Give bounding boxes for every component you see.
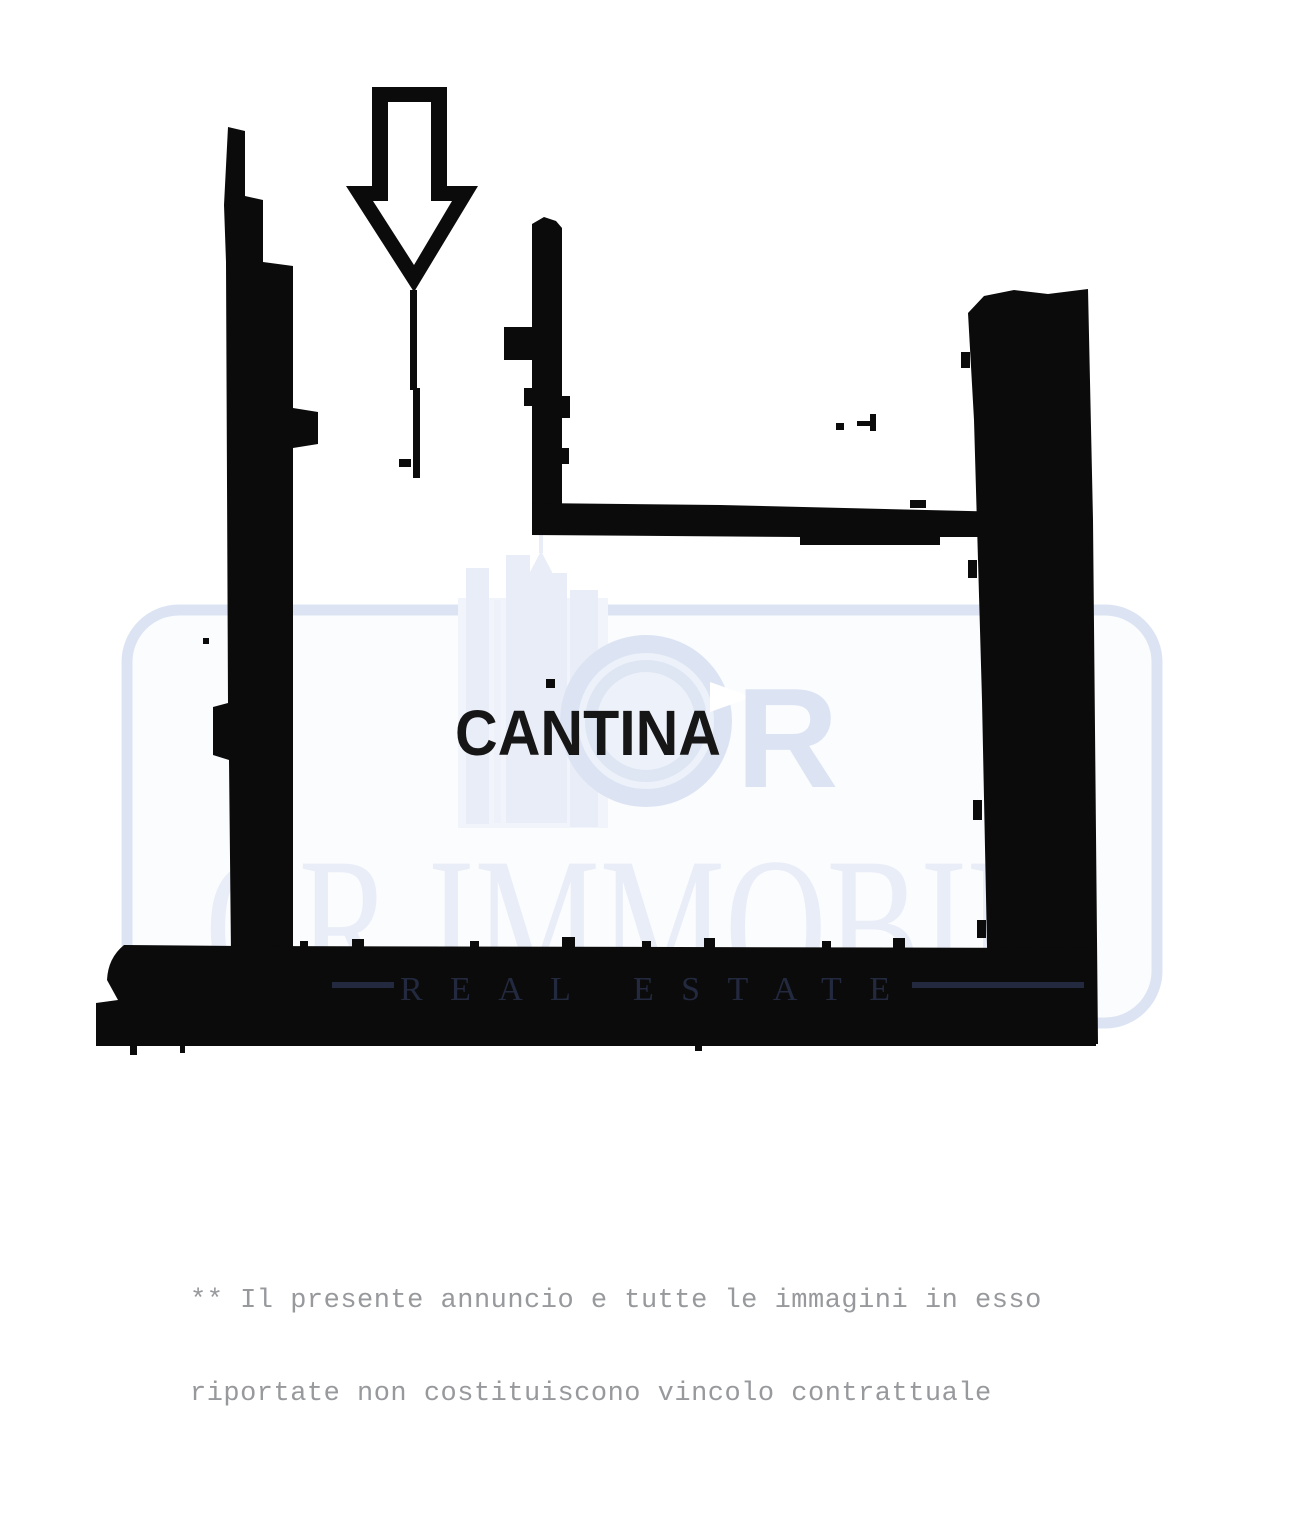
scanned-floorplan-page: R CR IMMOBILI xyxy=(0,0,1293,1536)
tagline-rule-right xyxy=(912,982,1084,988)
wall-partition xyxy=(532,503,1010,545)
room-label: CANTINA xyxy=(455,697,721,769)
disclaimer-line-2: riportate non costituiscono vincolo cont… xyxy=(190,1379,1042,1410)
tagline-text: REAL ESTATE xyxy=(400,971,905,1008)
wall-middle xyxy=(532,217,562,506)
monogram-letter: R xyxy=(736,659,839,818)
tagline-rule-left xyxy=(332,982,394,988)
disclaimer-line-1: ** Il presente annuncio e tutte le immag… xyxy=(190,1286,1042,1317)
wall-bottom xyxy=(96,945,1096,1046)
entrance-down-arrow-icon xyxy=(346,87,478,478)
disclaimer: ** Il presente annuncio e tutte le immag… xyxy=(190,1224,1042,1472)
wall-right xyxy=(968,289,1098,1044)
